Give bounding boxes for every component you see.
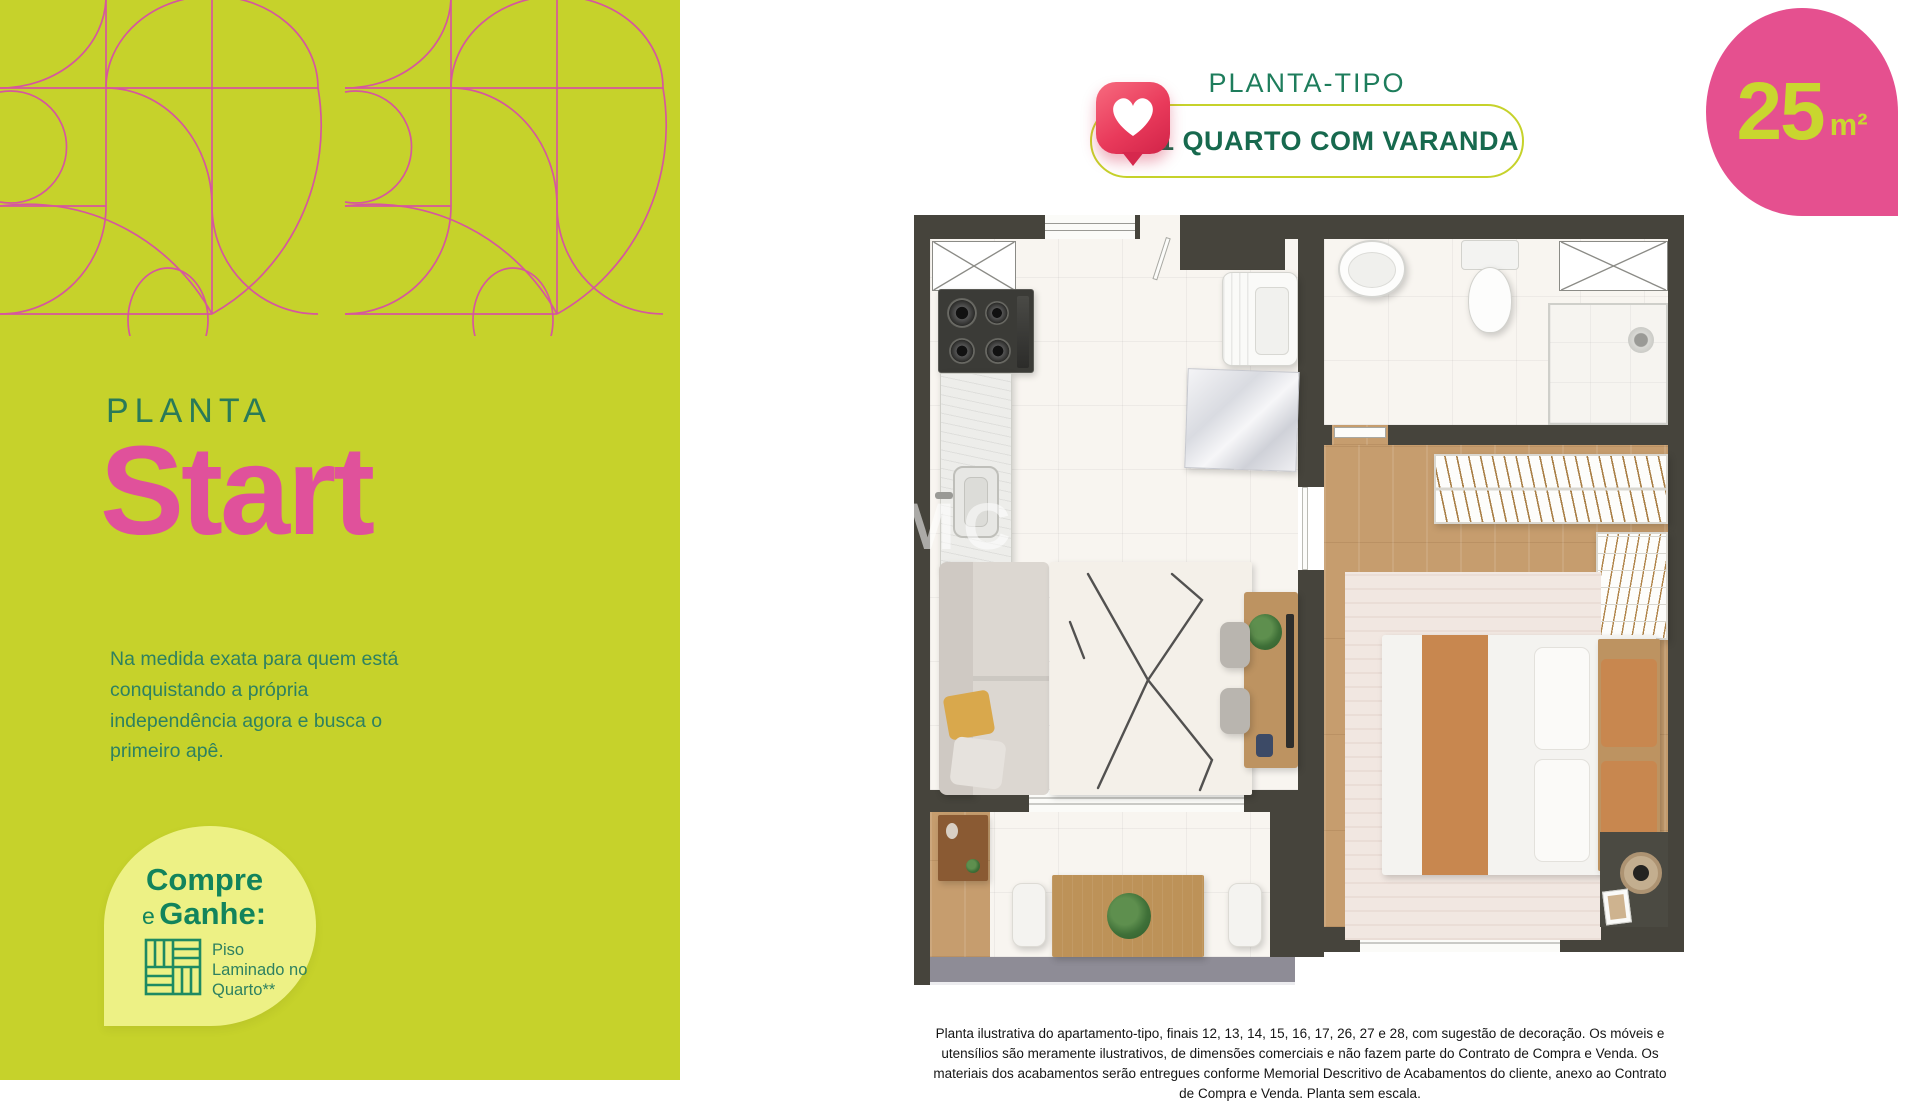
entry-door-opening [1140,215,1180,239]
laundry-counter [1184,368,1299,472]
promo-badge: Compre e Ganhe: Piso Laminado no Quarto*… [104,826,316,1026]
bathroom-sink [1338,240,1406,298]
stove-cooktop [938,289,1034,373]
kitchen-shaft-box [932,241,1016,291]
wall-living-bedroom-a [1298,445,1324,487]
wall-left [914,215,930,985]
bed-pillow-2 [1534,759,1590,862]
console-vase [1256,734,1273,757]
console-plant [1248,614,1282,650]
wall-balcony-b [1244,790,1298,812]
sofa-pillow-mustard [943,689,996,740]
bedroom-corner-nook [1600,832,1668,927]
wall-living-bedroom-b [1298,570,1324,812]
sofa-pillow-white [949,736,1006,790]
wall-top-right [1285,215,1684,239]
promo-title-e: e [142,903,155,929]
bathroom-door-leaf [1334,427,1386,438]
showerhead [1628,327,1654,353]
legal-disclaimer: Planta ilustrativa do apartamento-tipo, … [930,1024,1670,1105]
area-unit: m² [1830,107,1868,143]
stool-2 [1220,688,1250,734]
like-heart-icon [1096,82,1170,154]
watermark: MC [900,488,1019,564]
plan-name-title: Start [100,428,372,554]
bedroom-pocket-door [1302,487,1308,570]
tv [1286,614,1294,748]
geometric-pattern [0,0,680,336]
wall-balcony-right-block [1270,812,1324,957]
plan-description: Na medida exata para quem está conquista… [110,644,430,767]
bed-runner [1422,635,1488,875]
bench-cushion-1 [1601,659,1657,747]
living-rug [1050,562,1252,795]
promo-title-line2: e Ganhe: [142,896,266,932]
area-tag: 25 m² [1706,8,1898,216]
laminate-floor-icon [144,938,202,996]
shower-stall [1548,303,1668,425]
wardrobe-rack [1434,454,1668,524]
balcony-sideboard [938,815,988,881]
laundry-tub [1222,272,1298,366]
wall-niche-block [1180,215,1285,270]
table-plant [1107,893,1151,939]
promo-gift-label: Piso Laminado no Quarto** [212,938,317,1000]
bed-pillow-1 [1534,647,1590,750]
wall-living-bath-divider [1298,239,1324,445]
wall-bath-bottom-b [1388,425,1668,445]
stool-1 [1220,622,1250,668]
left-brand-panel: PLANTA Start Na medida exata para quem e… [0,0,680,1080]
floorplan [914,215,1684,987]
promo-title-word: Ganhe: [159,896,266,931]
kitchen-window [1045,215,1135,239]
wall-bath-bottom-a [1324,425,1332,445]
bathroom-shaft-box [1559,241,1668,291]
wall-top-left [914,215,1045,239]
wall-right [1668,215,1684,952]
unit-type-label: 1 QUARTO COM VARANDA [1159,126,1519,157]
area-value: 25 [1736,65,1823,159]
tv-console [1244,592,1298,768]
promo-title-line1: Compre [146,862,263,898]
balcony-table [1052,875,1204,957]
balcony-parapet [930,957,1295,985]
shelf-rack [1596,532,1668,640]
balcony-chair-right [1228,883,1262,947]
leaning-picture-frame [1602,889,1632,926]
balcony-chair-left [1012,883,1046,947]
